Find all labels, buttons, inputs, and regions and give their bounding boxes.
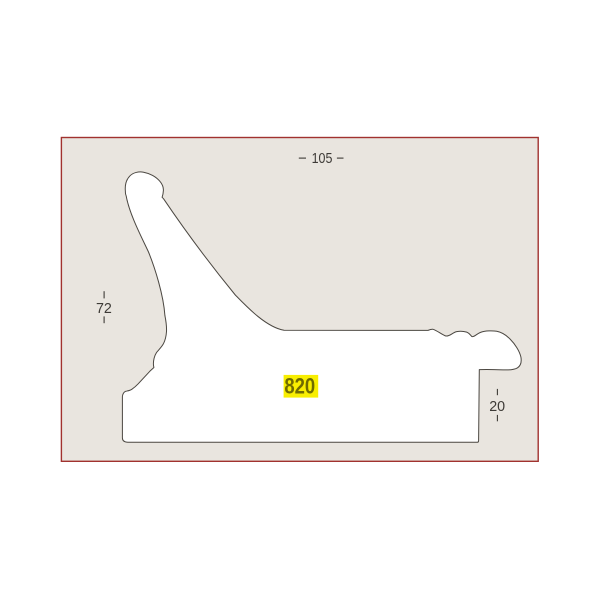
svg-text:20: 20 (489, 399, 505, 415)
svg-text:105: 105 (312, 151, 333, 167)
svg-text:820: 820 (284, 374, 315, 399)
svg-text:72: 72 (96, 301, 112, 317)
